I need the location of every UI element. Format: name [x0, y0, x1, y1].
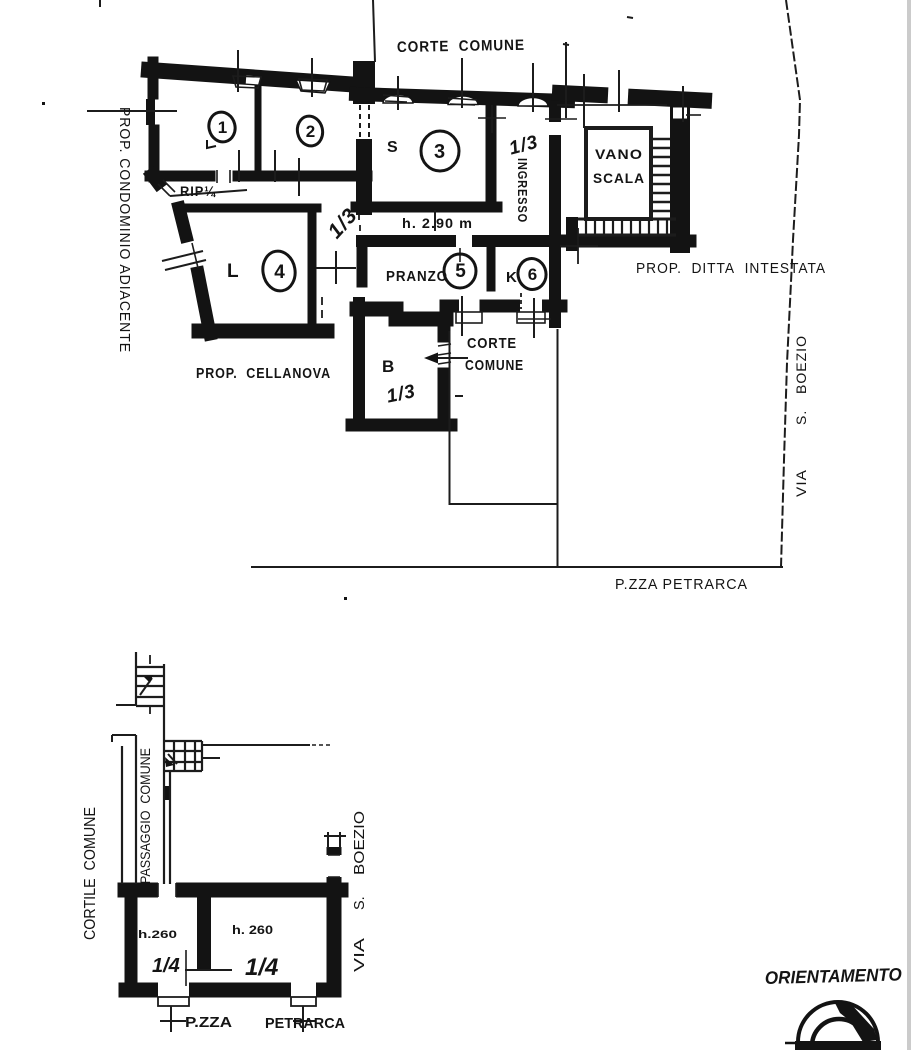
svg-text:RIP¼: RIP¼	[180, 184, 217, 199]
svg-text:h.260: h.260	[138, 929, 177, 941]
svg-text:ORIENTAMENTO: ORIENTAMENTO	[765, 964, 902, 988]
svg-text:INGRESSO: INGRESSO	[515, 158, 530, 223]
svg-text:2: 2	[306, 122, 316, 141]
svg-text:4: 4	[274, 262, 286, 283]
svg-text:PASSAGGIO COMUNE: PASSAGGIO COMUNE	[137, 748, 153, 884]
svg-text:PROP. DITTA INTESTATA: PROP. DITTA INTESTATA	[636, 261, 826, 277]
svg-text:1/3: 1/3	[385, 381, 418, 408]
svg-text:K: K	[506, 269, 518, 286]
svg-text:P.ZZA PETRARCA: P.ZZA PETRARCA	[615, 576, 748, 593]
svg-text:CORTE COMUNE: CORTE COMUNE	[397, 37, 525, 56]
svg-text:1/4: 1/4	[245, 954, 278, 981]
svg-text:CORTE: CORTE	[467, 335, 517, 352]
svg-text:SCALA: SCALA	[593, 170, 645, 186]
svg-text:PROP. CONDOMINIO ADIACENTE: PROP. CONDOMINIO ADIACENTE	[116, 107, 133, 353]
svg-text:B: B	[382, 357, 395, 376]
svg-text:S.: S.	[352, 896, 368, 910]
svg-text:1/4: 1/4	[152, 955, 180, 977]
svg-text:1: 1	[218, 118, 228, 137]
svg-text:5: 5	[455, 261, 467, 282]
svg-text:PETRARCA: PETRARCA	[265, 1015, 345, 1032]
svg-text:P.ZZA: P.ZZA	[185, 1014, 232, 1031]
svg-text:CORTILE COMUNE: CORTILE COMUNE	[82, 807, 99, 940]
svg-text:VANO: VANO	[595, 146, 643, 162]
svg-text:6: 6	[528, 265, 538, 284]
svg-text:BOEZIO: BOEZIO	[352, 811, 368, 875]
svg-text:VIA: VIA	[793, 469, 809, 497]
svg-text:h. 260: h. 260	[232, 923, 273, 937]
svg-text:PRANZO: PRANZO	[386, 268, 448, 285]
svg-text:1/3: 1/3	[507, 132, 541, 160]
svg-text:S: S	[387, 139, 399, 156]
svg-text:h. 2.90 m: h. 2.90 m	[402, 215, 473, 231]
svg-text:BOEZIO: BOEZIO	[793, 335, 809, 394]
svg-text:S.: S.	[793, 410, 809, 425]
svg-text:PROP. CELLANOVA: PROP. CELLANOVA	[196, 366, 331, 382]
svg-text:3: 3	[434, 141, 446, 163]
svg-text:COMUNE: COMUNE	[465, 357, 524, 374]
svg-text:L: L	[227, 261, 240, 282]
svg-text:VIA: VIA	[352, 938, 368, 972]
